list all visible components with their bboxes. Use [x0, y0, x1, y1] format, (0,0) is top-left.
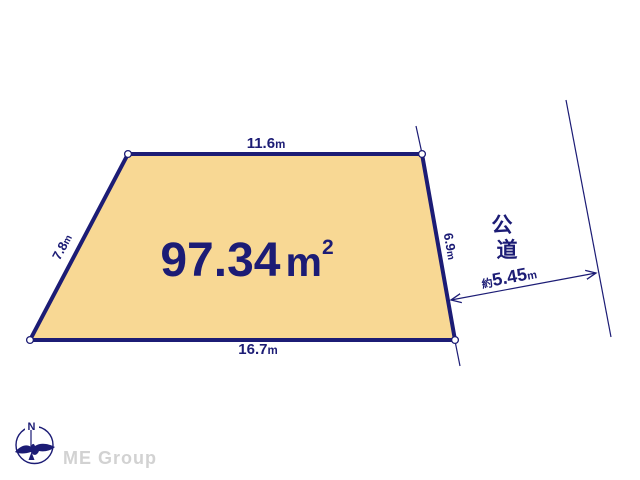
bird-logo-icon [15, 444, 55, 455]
plot-diagram-canvas: 97.34m2 11.6m 16.7m 7.8m 6.9m 公 道 約5.45m… [0, 0, 640, 480]
dim-right-unit: m [444, 250, 456, 261]
vertex-marker-top-left [125, 151, 132, 158]
area-unit-superscript: 2 [322, 236, 334, 259]
dim-bottom-unit: m [267, 345, 277, 357]
dim-bottom-value: 16.7 [238, 341, 267, 358]
area-unit: m [285, 239, 321, 285]
vertex-marker-top-right [419, 151, 426, 158]
area-value: 97.34 [160, 234, 280, 287]
dim-top-label: 11.6m [247, 135, 286, 152]
dim-right-value: 6.9 [441, 232, 459, 252]
brand-watermark: ME Group [63, 448, 157, 468]
road-edge-line [566, 100, 611, 337]
road-width-unit: m [526, 269, 538, 283]
dim-right-label: 6.9m [441, 232, 460, 261]
dim-bottom-label: 16.7m [238, 341, 277, 358]
land-plot-diagram-page: 97.34m2 11.6m 16.7m 7.8m 6.9m 公 道 約5.45m… [0, 0, 640, 480]
dim-top-value: 11.6 [247, 135, 275, 152]
dim-top-unit: m [275, 139, 285, 151]
road-name-char-2: 道 [497, 238, 518, 262]
extension-line-bottom-right [455, 341, 460, 366]
road-name-char-1: 公 [492, 214, 513, 237]
area-label: 97.34m2 [160, 234, 333, 287]
vertex-marker-bottom-right [452, 337, 459, 344]
road-name-vertical: 公 道 [492, 214, 518, 262]
compass: N [15, 420, 55, 464]
vertex-marker-bottom-left [27, 337, 34, 344]
road-width-label: 約5.45m [480, 262, 539, 292]
